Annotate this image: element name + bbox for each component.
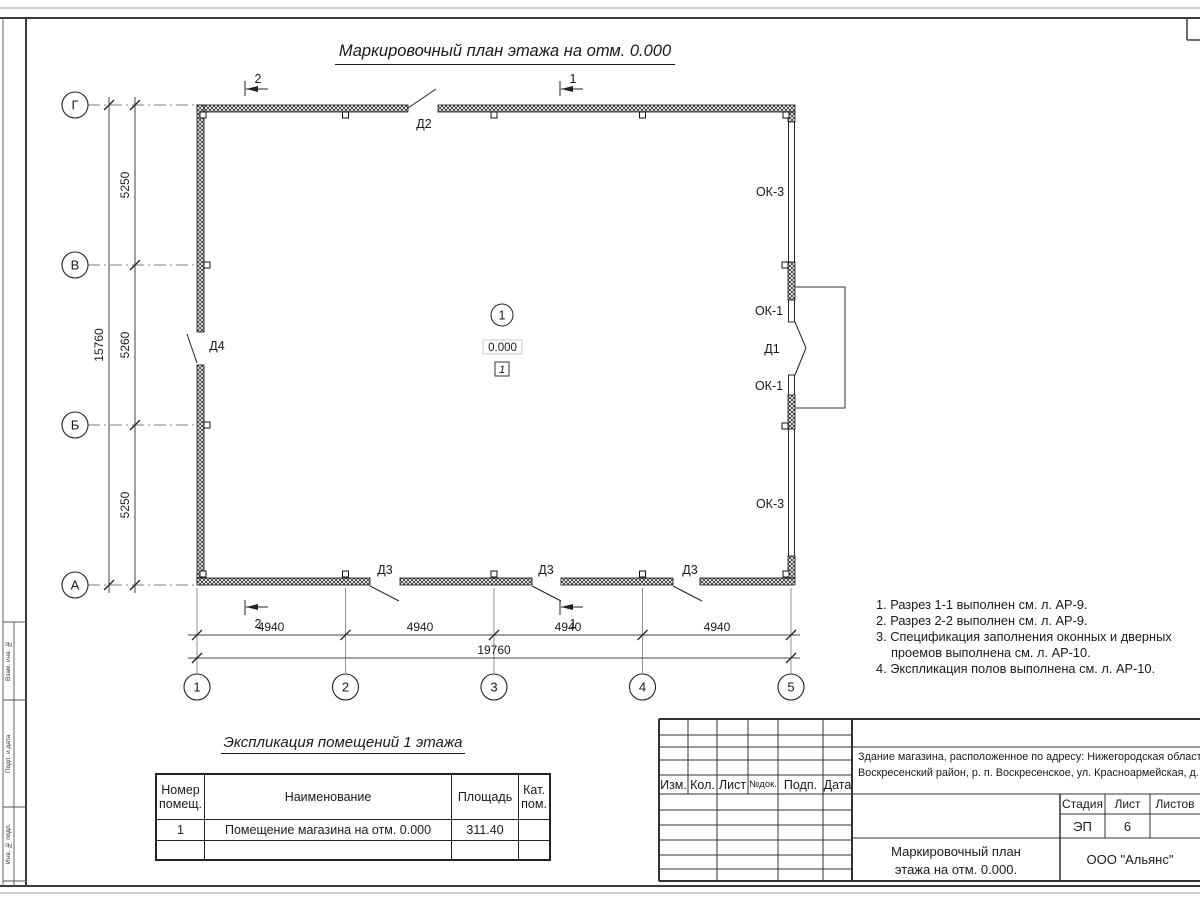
axis-grid [62, 92, 804, 700]
section-marks [245, 81, 583, 615]
door-d3-label-3: Д3 [682, 563, 697, 577]
col-header-area: Площадь [452, 774, 519, 819]
stage-label: Стадия [1060, 794, 1105, 814]
window-ok3-bottom [789, 429, 795, 556]
dim-bottom-total: 19760 [477, 643, 511, 657]
dim-left-1: 5250 [118, 171, 132, 198]
section-mark-1-bottom: 1 [570, 617, 577, 631]
drawing-name-line2: этажа на отм. 0.000. [852, 861, 1060, 879]
door-d3-leaf-2 [532, 586, 561, 601]
col-header-name: Наименование [205, 774, 452, 819]
window-ok1-top [789, 300, 795, 322]
door-d3-leaf-1 [370, 586, 399, 601]
axis-row-b: Б [71, 418, 80, 433]
stamp-header-kol: Кол. [688, 775, 717, 794]
door-d4-leaf [187, 334, 197, 363]
stamp-header-izm: Изм. [659, 775, 688, 794]
room-tag: 1 0.000 1 [483, 304, 522, 376]
porch-outline [795, 287, 845, 408]
strip-label-podp: Подп. и дата [2, 700, 15, 807]
cell-room-cat [519, 819, 551, 840]
empty-cell [452, 840, 519, 860]
stamp-header-ndok: №док. [748, 775, 778, 794]
axis-row-v: В [71, 258, 80, 273]
empty-cell [519, 840, 551, 860]
window-ok1-label-bottom: ОК-1 [755, 379, 783, 393]
floor-type-tag: 1 [499, 364, 505, 376]
room-elevation: 0.000 [488, 342, 517, 354]
dim-left-3: 5250 [118, 491, 132, 518]
room-table-header-row: Номер помещ. Наименование Площадь Кат. п… [156, 774, 550, 819]
dim-bottom-2: 4940 [407, 620, 434, 634]
room-number: 1 [499, 309, 506, 323]
col-header-number: Номер помещ. [156, 774, 205, 819]
project-description: Здание магазина, расположенное по адресу… [858, 750, 1200, 781]
room-table-title: Экспликация помещений 1 этажа [155, 734, 531, 754]
note-line: 2. Разрез 2-2 выполнен см. л. АР-9. [876, 613, 1172, 629]
axis-col-5: 5 [787, 680, 794, 695]
room-table-title-text: Экспликация помещений 1 этажа [221, 734, 464, 754]
project-description-line1: Здание магазина, расположенное по адресу… [858, 750, 1200, 766]
note-line: 1. Разрез 1-1 выполнен см. л. АР-9. [876, 597, 1172, 613]
door-d2-leaf [408, 89, 436, 108]
axis-col-4: 4 [639, 680, 646, 695]
room-table: Номер помещ. Наименование Площадь Кат. п… [155, 773, 551, 861]
drawing-title: Маркировочный план этажа на отм. 0.000 [250, 42, 760, 65]
room-table-empty-row [156, 840, 550, 860]
empty-cell [205, 840, 452, 860]
note-line: 4. Экспликация полов выполнена см. л. АР… [876, 661, 1172, 677]
drawing-title-text: Маркировочный план этажа на отм. 0.000 [335, 42, 675, 65]
door-d1-label: Д1 [764, 342, 779, 356]
window-ok3-label-bottom: ОК-3 [756, 497, 784, 511]
dim-left-total: 15760 [92, 328, 106, 362]
section-mark-labels: 2 1 2 1 [255, 72, 577, 631]
dim-bottom-4: 4940 [704, 620, 731, 634]
windows [789, 122, 795, 556]
cell-room-area: 311.40 [452, 819, 519, 840]
axis-labels: Г В Б А 1 2 3 4 5 [71, 98, 795, 695]
cell-room-name: Помещение магазина на отм. 0.000 [205, 819, 452, 840]
company-name: ООО "Альянс" [1060, 838, 1200, 881]
window-ok1-label-top: ОК-1 [755, 304, 783, 318]
axis-col-3: 3 [490, 680, 497, 695]
door-d3-label-1: Д3 [377, 563, 392, 577]
note-line: проемов выполнена см. л. АР-10. [876, 645, 1172, 661]
empty-cell [156, 840, 205, 860]
cell-room-number: 1 [156, 819, 205, 840]
window-ok1-bottom [789, 375, 795, 395]
sheet-value: 6 [1105, 814, 1150, 838]
drawing-name: Маркировочный план этажа на отм. 0.000. [852, 843, 1060, 879]
dim-bottom-3: 4940 [555, 620, 582, 634]
room-table-row: 1 Помещение магазина на отм. 0.000 311.4… [156, 819, 550, 840]
section-mark-2-top: 2 [255, 72, 262, 86]
section-mark-2-bottom: 2 [255, 617, 262, 631]
dim-left-2: 5260 [118, 331, 132, 358]
door-d1-leaves [795, 322, 806, 375]
drawing-sheet: Г В Б А 1 2 3 4 5 4940 4940 4940 4940 19… [0, 0, 1200, 900]
section-mark-1-top: 1 [570, 72, 577, 86]
door-d3-label-2: Д3 [538, 563, 553, 577]
door-d4-label: Д4 [209, 339, 224, 353]
note-line: 3. Спецификация заполнения оконных и две… [876, 629, 1172, 645]
axis-row-a: А [71, 578, 80, 593]
axis-col-1: 1 [193, 680, 200, 695]
stage-value: ЭП [1060, 814, 1105, 838]
door-d2-label: Д2 [416, 117, 431, 131]
stamp-header-podp: Подп. [778, 775, 823, 794]
stamp-header-data: Дата [823, 775, 852, 794]
window-ok3-label-top: ОК-3 [756, 185, 784, 199]
notes-block: 1. Разрез 1-1 выполнен см. л. АР-9. 2. Р… [876, 597, 1172, 677]
dim-bottom-1: 4940 [258, 620, 285, 634]
sheets-label: Листов [1150, 794, 1200, 814]
strip-label-inv: Инв. № подл. [2, 807, 15, 881]
stamp-header-list: Лист [717, 775, 748, 794]
window-ok3-top [789, 122, 795, 262]
strip-label-vzam: Взам. инв. № [2, 622, 15, 700]
door-d3-leaf-3 [673, 586, 702, 601]
col-header-cat: Кат. пом. [519, 774, 551, 819]
project-description-line2: Воскресенский район, р. п. Воскресенское… [858, 766, 1200, 782]
drawing-name-line1: Маркировочный план [852, 843, 1060, 861]
sheet-label: Лист [1105, 794, 1150, 814]
axis-col-2: 2 [342, 680, 349, 695]
axis-row-g: Г [71, 98, 78, 113]
